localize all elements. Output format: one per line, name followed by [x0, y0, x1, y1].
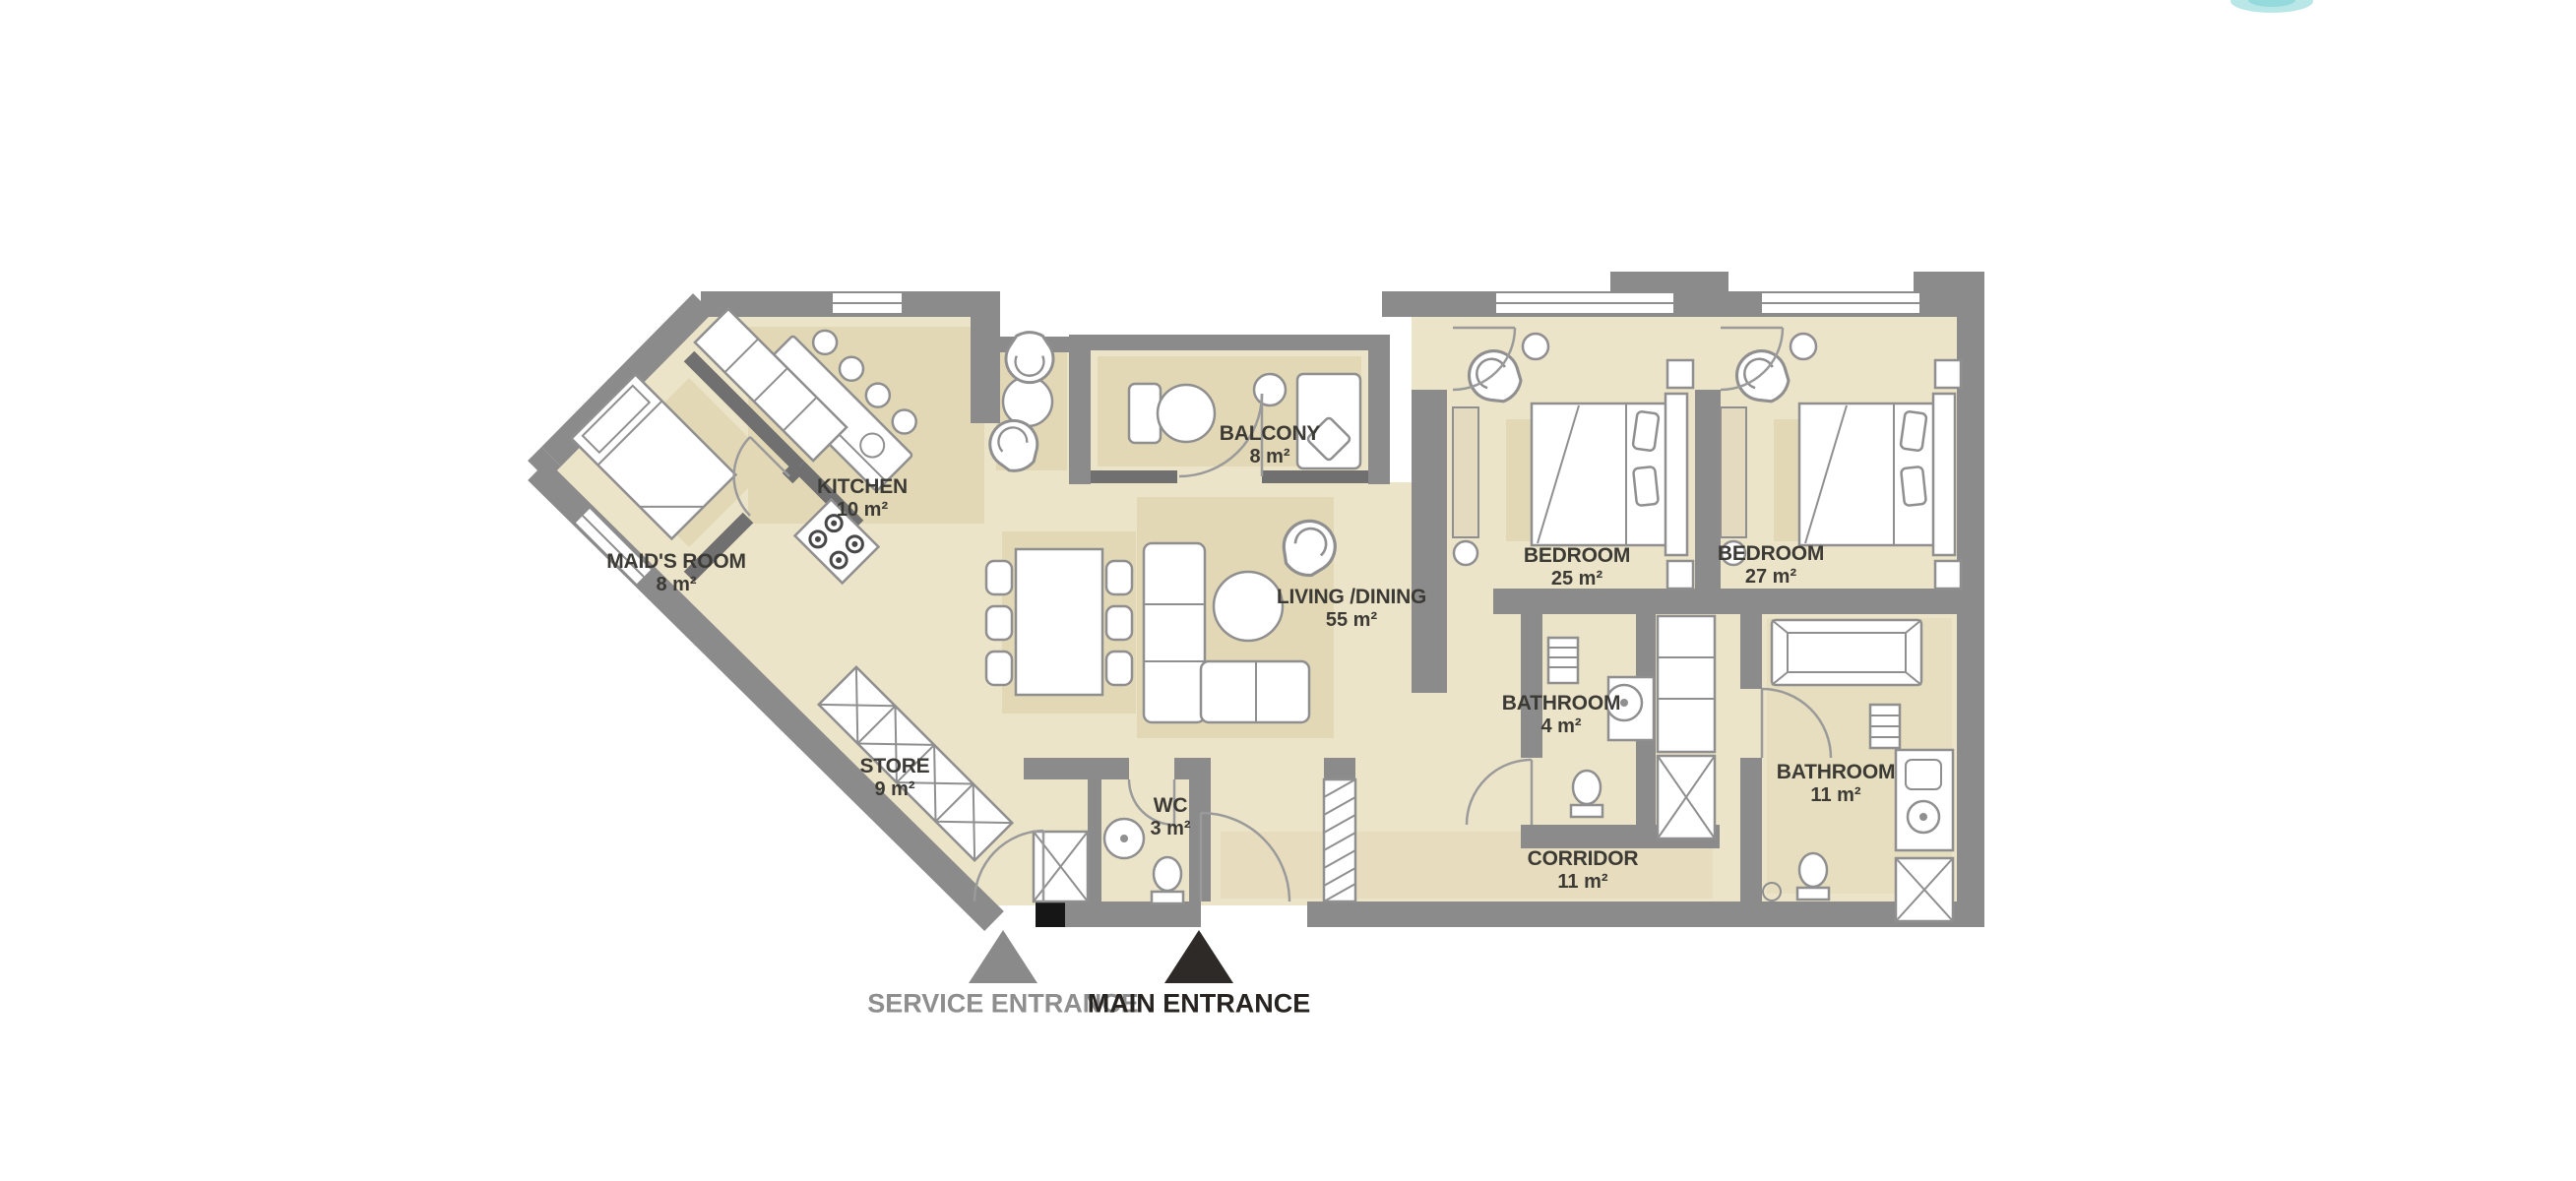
room-name: CORRIDOR [1528, 847, 1639, 871]
room-label-kitchen: KITCHEN10 m² [817, 475, 908, 521]
room-name: BEDROOM [1718, 542, 1824, 566]
service-threshold [1036, 901, 1065, 927]
room-name: LIVING /DINING [1277, 586, 1426, 609]
bathroom2-closet [1896, 858, 1953, 921]
room-label-bedroom-1: BEDROOM25 m² [1524, 544, 1630, 590]
room-name: BEDROOM [1524, 544, 1630, 568]
dining-set [986, 549, 1132, 695]
room-name: MAID'S ROOM [606, 550, 746, 574]
room-label-maids-room: MAID'S ROOM8 m² [606, 550, 746, 595]
room-area: 25 m² [1524, 568, 1630, 590]
room-label-bedroom-2: BEDROOM27 m² [1718, 542, 1824, 588]
room-area: 11 m² [1777, 784, 1896, 806]
room-label-wc: WC3 m² [1150, 794, 1190, 839]
main-entrance-triangle-icon [1164, 930, 1233, 983]
floor-plan-page: MAID'S ROOM8 m²KITCHEN10 m²BALCONY8 m²LI… [0, 0, 2576, 1181]
room-area: 3 m² [1150, 818, 1190, 839]
room-area: 9 m² [860, 778, 930, 800]
coffee-table [1214, 572, 1283, 641]
room-area: 27 m² [1718, 566, 1824, 588]
room-area: 11 m² [1528, 871, 1639, 893]
room-name: BALCONY [1220, 422, 1320, 446]
room-name: BATHROOM [1777, 761, 1896, 784]
room-label-balcony: BALCONY8 m² [1220, 422, 1320, 467]
teal-smudge-decoration [2230, 0, 2313, 13]
room-area: 4 m² [1502, 715, 1621, 737]
service-entrance-triangle-icon [969, 930, 1037, 983]
room-name: BATHROOM [1502, 692, 1621, 715]
main-entrance-label: MAIN ENTRANCE [1088, 989, 1311, 1020]
wardrobe-column [1658, 616, 1715, 839]
room-name: KITCHEN [817, 475, 908, 499]
hatched-shaft [1324, 779, 1355, 901]
room-label-store: STORE9 m² [860, 755, 930, 800]
room-label-corridor: CORRIDOR11 m² [1528, 847, 1639, 893]
room-area: 8 m² [606, 574, 746, 595]
room-label-bathroom-1: BATHROOM4 m² [1502, 692, 1621, 737]
room-name: STORE [860, 755, 930, 778]
room-name: WC [1150, 794, 1190, 818]
room-label-bathroom-2: BATHROOM11 m² [1777, 761, 1896, 806]
room-area: 55 m² [1277, 609, 1426, 631]
room-area: 10 m² [817, 499, 908, 521]
room-area: 8 m² [1220, 446, 1320, 467]
hall-closet [1034, 832, 1088, 901]
room-label-living-dining: LIVING /DINING55 m² [1277, 586, 1426, 631]
